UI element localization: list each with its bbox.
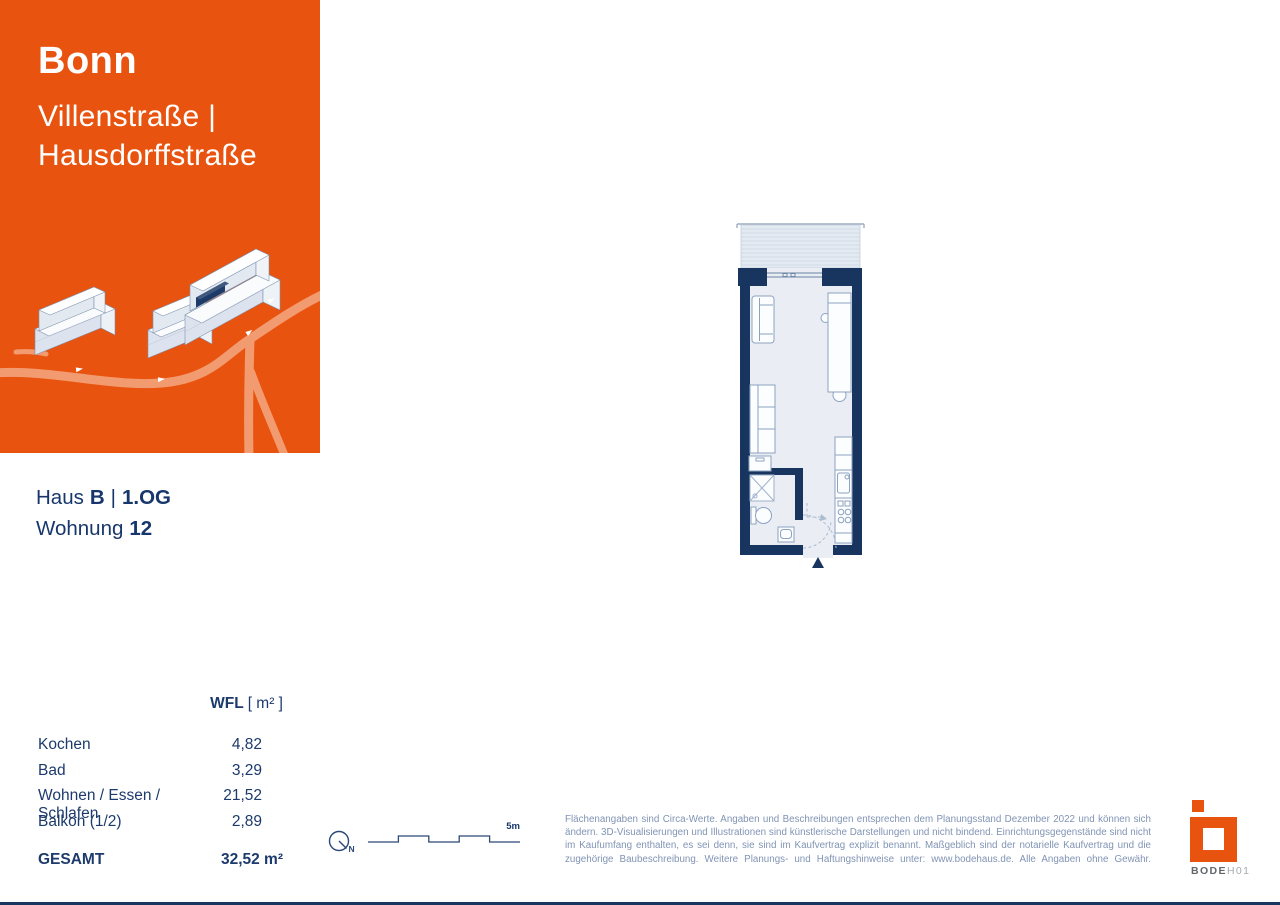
apartment-line: Wohnung12 [36, 513, 171, 544]
brand-logo: BODEH01 [1190, 798, 1260, 882]
table-row: Bad 3,29 [38, 762, 283, 780]
logo-text-strong: BODE [1191, 865, 1227, 877]
total-label: GESAMT [38, 851, 104, 869]
header-unit: [ m² ] [248, 695, 283, 712]
table-row: Kochen 4,82 [38, 736, 283, 754]
house-value: B [90, 486, 105, 509]
row-value: 3,29 [232, 762, 283, 780]
entrance-threshold [803, 545, 833, 558]
map-aids: N 5m [325, 812, 545, 860]
brand-panel: Bonn Villenstraße | Hausdorffstraße [0, 0, 320, 453]
shower [750, 475, 774, 501]
sofa [752, 296, 774, 343]
floor-value: 1.OG [122, 486, 171, 509]
row-label: Kochen [38, 736, 91, 754]
logo-text-light: H01 [1227, 865, 1250, 877]
house-label: Haus [36, 486, 84, 509]
dresser [749, 456, 771, 471]
floor-plan [730, 215, 870, 571]
street-title-line2: Hausdorffstraße [38, 139, 257, 173]
disclaimer-text: Flächenangaben sind Circa-Werte. Angaben… [565, 813, 1151, 866]
row-value: 2,89 [232, 813, 283, 831]
row-label: Bad [38, 762, 66, 780]
city-title: Bonn [38, 40, 137, 83]
wardrobe [750, 385, 775, 453]
table-row: Balkon (1/2) 2,89 [38, 813, 283, 831]
north-label: N [349, 844, 355, 854]
road [251, 372, 286, 453]
bath-sink [778, 527, 794, 542]
apartment-number: 12 [129, 517, 152, 540]
entrance-arrow-icon [812, 557, 824, 568]
logo-dot-icon [1192, 800, 1204, 812]
header-metric: WFL [210, 695, 244, 712]
toilet [751, 507, 772, 524]
floorplan-sheet: Bonn Villenstraße | Hausdorffstraße [0, 0, 1280, 905]
apartment-label: Wohnung [36, 517, 123, 540]
logo-inner-square [1203, 828, 1224, 850]
arrow-icon [76, 367, 83, 373]
row-label: Balkon (1/2) [38, 813, 122, 831]
table-header: WFL[ m² ] [210, 695, 283, 713]
building-left [35, 287, 115, 355]
divider: | [111, 486, 116, 509]
row-value: 4,82 [232, 736, 283, 754]
table-total-row: GESAMT 32,52 m² [38, 851, 283, 869]
kitchen-counter [835, 437, 852, 543]
north-icon [330, 832, 349, 851]
logo-square-icon [1190, 817, 1237, 862]
logo-text: BODEH01 [1191, 865, 1250, 877]
house-floor-line: HausB|1.OG [36, 482, 171, 513]
total-value: 32,52 m² [221, 851, 283, 869]
unit-info: HausB|1.OG Wohnung12 [36, 482, 171, 544]
scale-bar [368, 836, 520, 842]
road [249, 339, 250, 453]
balcony [741, 225, 860, 268]
street-title-line1: Villenstraße | [38, 100, 216, 134]
site-illustration [0, 237, 320, 453]
scale-label: 5m [506, 821, 520, 832]
